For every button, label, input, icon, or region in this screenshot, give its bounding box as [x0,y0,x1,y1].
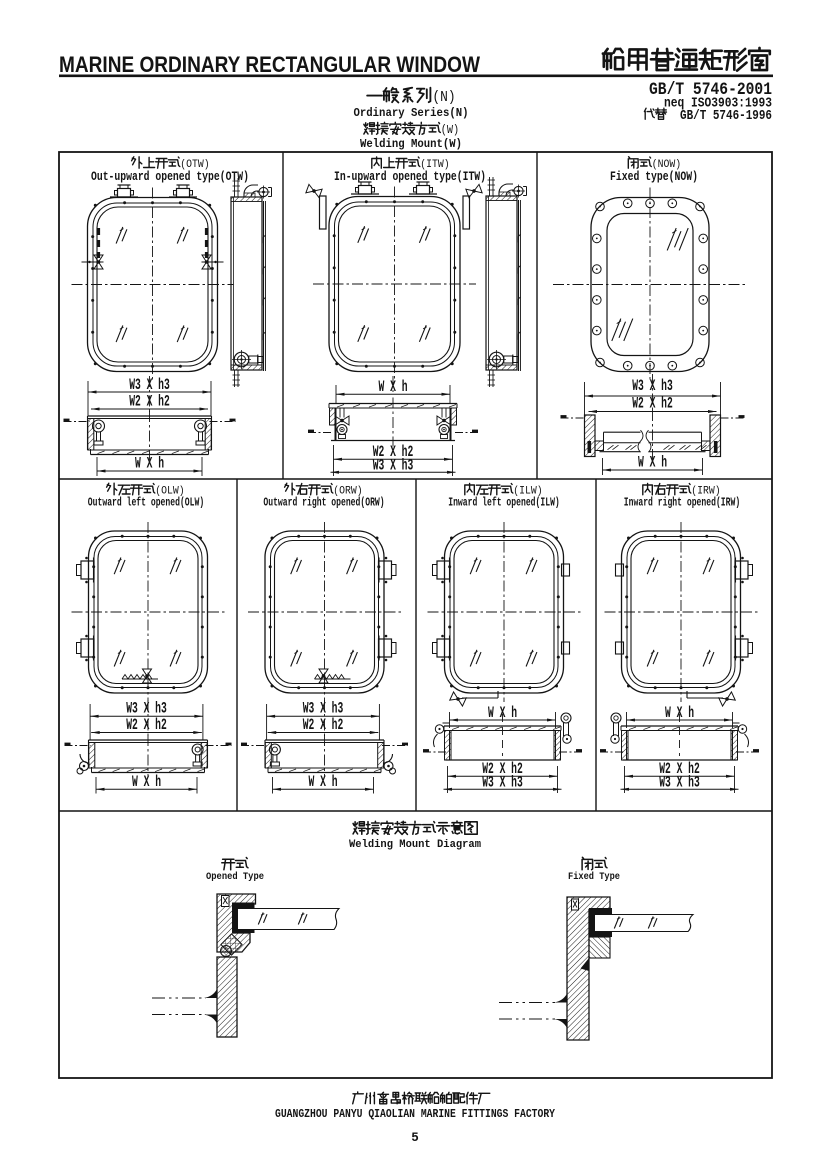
svg-text:Ordinary Series(N): Ordinary Series(N) [354,106,469,120]
svg-text:GB/T 5746-1996: GB/T 5746-1996 [680,108,772,124]
svg-text:W X h: W X h [132,773,161,791]
svg-text:(W): (W) [441,123,459,137]
svg-text:W3 X h3: W3 X h3 [303,700,344,718]
svg-text:W3 X h3: W3 X h3 [373,457,414,475]
svg-text:Outward right opened(ORW): Outward right opened(ORW) [263,497,384,510]
svg-text:Out-upward opened type(OTW): Out-upward opened type(OTW) [91,169,249,184]
svg-text:In-upward opened type(ITW): In-upward opened type(ITW) [334,169,486,184]
svg-text:W2 X h2: W2 X h2 [303,716,344,734]
svg-text:W2 X h2: W2 X h2 [126,716,167,734]
svg-text:MARINE ORDINARY RECTANGULAR WI: MARINE ORDINARY RECTANGULAR WINDOW [59,52,481,77]
svg-text:5: 5 [411,1131,419,1145]
svg-text:W X h: W X h [309,773,338,791]
svg-text:Fixed type(NOW): Fixed type(NOW) [610,169,698,184]
svg-text:Inward right opened(IRW): Inward right opened(IRW) [624,497,740,510]
svg-text:(N): (N) [432,90,455,106]
svg-text:Outward left opened(OLW): Outward left opened(OLW) [88,497,204,510]
svg-text:W3 X h3: W3 X h3 [126,700,167,718]
svg-text:W3 X h3: W3 X h3 [482,773,523,791]
svg-text:W3 X h3: W3 X h3 [659,773,700,791]
svg-text:W X h: W X h [135,455,164,473]
svg-text:GUANGZHOU PANYU QIAOLIAN MARIN: GUANGZHOU PANYU QIAOLIAN MARINE FITTINGS… [275,1108,555,1121]
svg-text:W X h: W X h [638,454,667,472]
svg-text:Inward left opened(ILW): Inward left opened(ILW) [448,497,560,510]
svg-text:Opened Type: Opened Type [206,871,264,883]
svg-text:Welding Mount(W): Welding Mount(W) [360,137,462,151]
svg-text:Welding Mount Diagram: Welding Mount Diagram [349,839,481,851]
svg-text:Fixed Type: Fixed Type [568,871,620,883]
